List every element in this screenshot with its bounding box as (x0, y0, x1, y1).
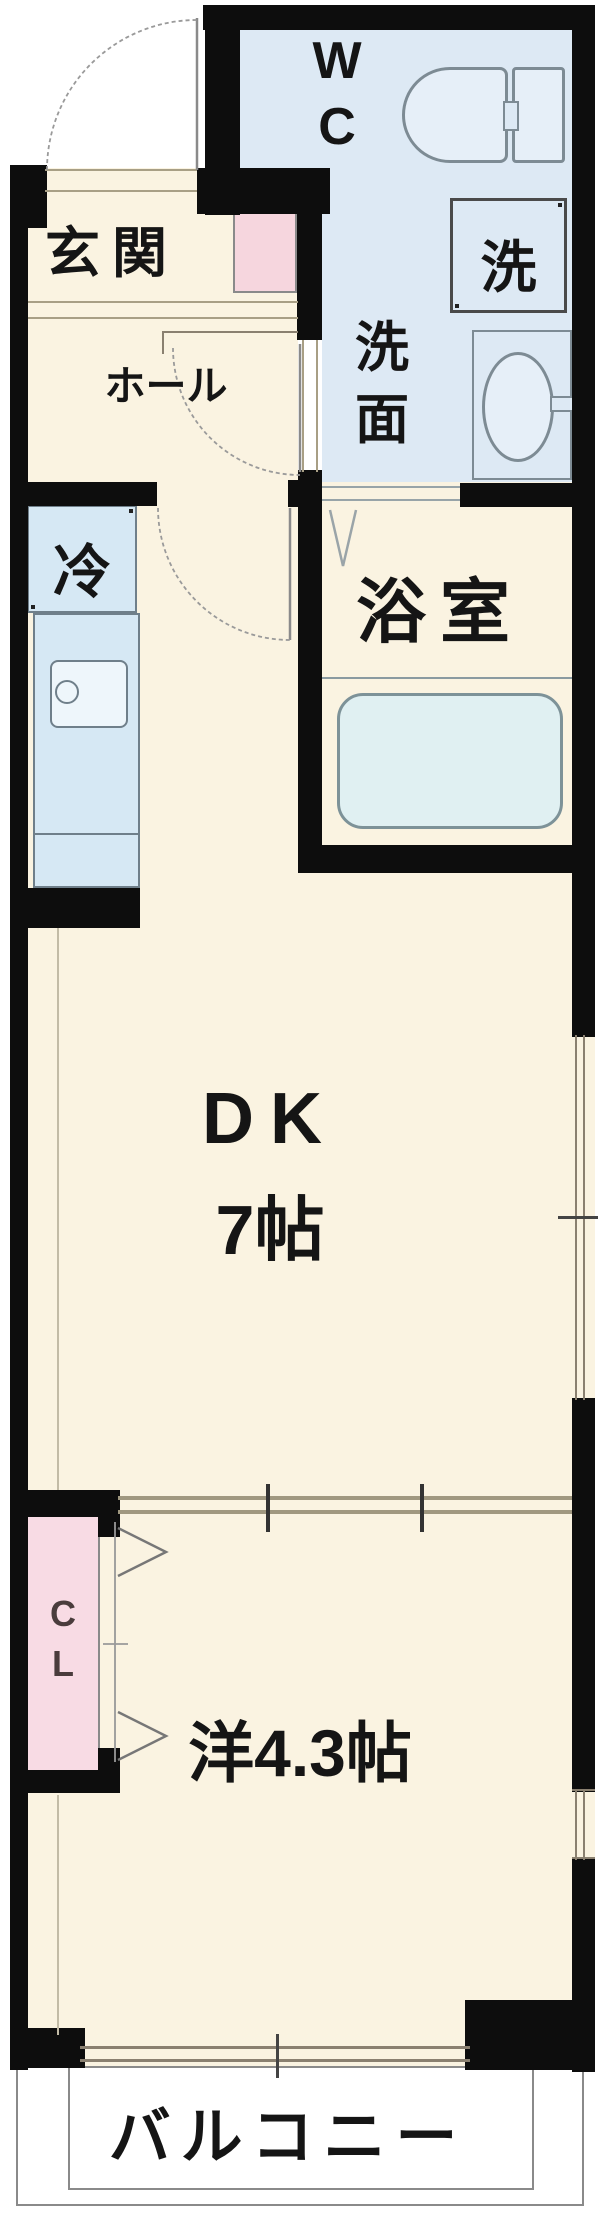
western-room-label: 洋4.3帖 (48, 1700, 552, 1796)
washroom-label: 洗 面 (346, 312, 418, 456)
dk-name-label: DK (100, 1078, 440, 1160)
hall-label: ホール (86, 352, 246, 412)
dk-door-arc-icon (158, 508, 290, 640)
bifold-door-icon (118, 1528, 166, 1576)
wc-label: W C (298, 28, 376, 160)
floor-plan: バルコニー 洗 冷 C L (0, 0, 600, 2220)
dk-size-label: 7帖 (100, 1174, 440, 1275)
bathroom-label: 浴室 (320, 556, 560, 657)
entrance-door-arc-icon (47, 20, 197, 170)
genkan-label: 玄関 (36, 208, 188, 288)
